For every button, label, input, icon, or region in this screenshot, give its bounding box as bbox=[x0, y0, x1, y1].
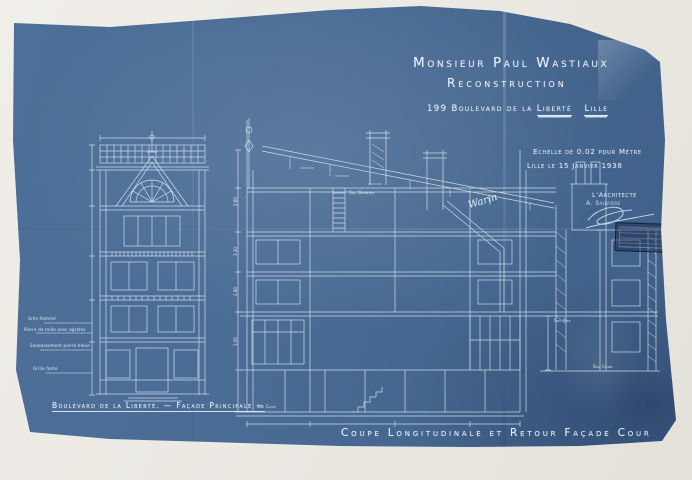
scanned-blueprint-page: { "colors": { "scan_background": "#eeebe… bbox=[0, 0, 692, 480]
vertical-fold-crease bbox=[503, 0, 506, 480]
title-subtitle: Reconstruction bbox=[447, 76, 567, 90]
handwritten-signature: Warin bbox=[467, 192, 499, 211]
architect-name: A. Sauvière bbox=[586, 200, 621, 207]
material-annotation: Soubassement pierre bleue bbox=[30, 343, 90, 348]
place-date: Lille le 15 Janvier 1938 bbox=[527, 162, 623, 170]
material-annotation: Grille fonte bbox=[33, 366, 58, 371]
archival-stamp bbox=[615, 222, 670, 253]
label-sol-rez: Sol Rez bbox=[554, 318, 571, 323]
horizontal-fold-crease bbox=[0, 228, 692, 230]
title-owner: Monsieur Paul Wastiaux bbox=[413, 55, 609, 71]
material-annotation: Pierre de taille avec agrafes bbox=[24, 327, 86, 332]
address-prefix: 199 Boulevard de la bbox=[427, 104, 537, 114]
dimension-value: 2.60 bbox=[233, 197, 238, 206]
label-sol-cave: Sol Cave bbox=[257, 404, 276, 409]
label-sol-cour: Sol Cour bbox=[593, 364, 613, 369]
dimension-value: 2.80 bbox=[233, 287, 238, 296]
dimension-value: 3.20 bbox=[233, 247, 238, 256]
facade-elevation-drawing bbox=[36, 131, 209, 401]
architect-label: L'Architecte bbox=[592, 191, 637, 199]
material-annotation: Grès flammé bbox=[28, 316, 56, 321]
blueprint-sheet: Monsieur Paul Wastiaux Reconstruction 19… bbox=[0, 0, 692, 480]
address-emphasis: Liberté bbox=[537, 104, 572, 116]
title-address: 199 Boulevard de la Liberté Lille bbox=[427, 104, 608, 114]
scale-note: Echelle de 0.02 pour Mètre bbox=[533, 148, 642, 156]
address-city: Lille bbox=[584, 104, 608, 116]
dimension-value: 1.00 bbox=[233, 337, 238, 346]
archival-stamp-lines bbox=[619, 226, 666, 249]
section-caption: Coupe Longitudinale et Retour Façade Cou… bbox=[341, 427, 652, 439]
label-sol-grenier: Sol Grenier bbox=[349, 190, 374, 195]
facade-caption: Boulevard de la Liberté. — Façade Princi… bbox=[52, 401, 265, 412]
